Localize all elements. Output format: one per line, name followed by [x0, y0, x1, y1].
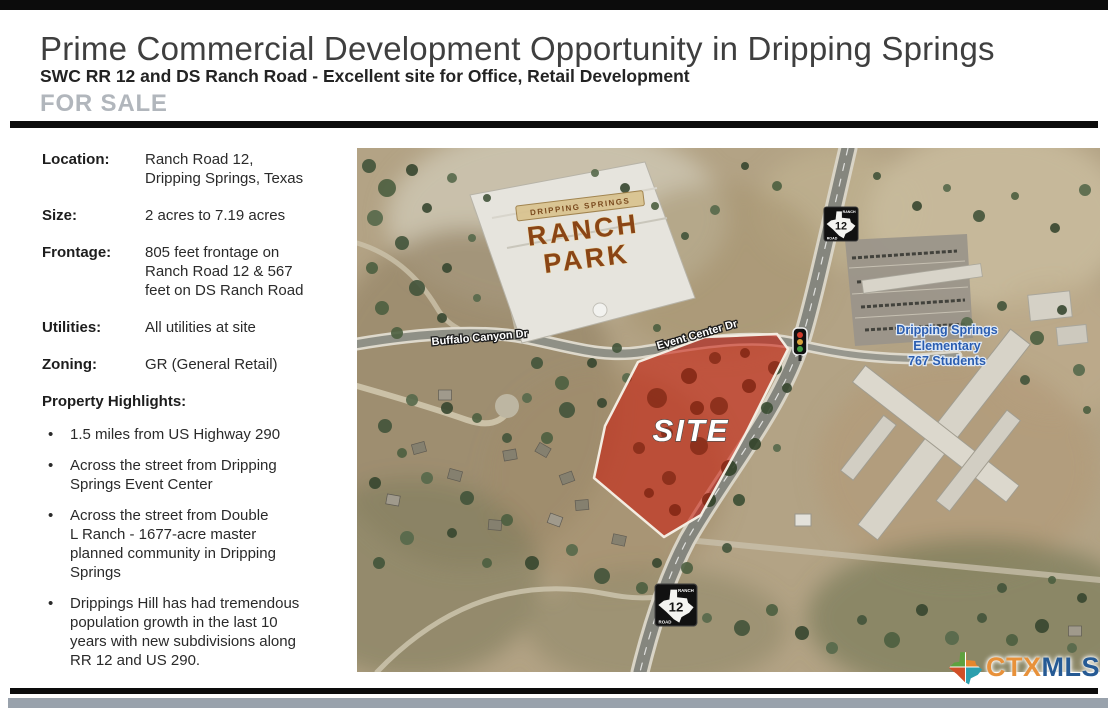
svg-text:767 Students: 767 Students — [908, 354, 986, 368]
bullet-icon: • — [42, 506, 70, 582]
detail-row-zoning: Zoning: GR (General Retail) — [42, 355, 354, 374]
detail-row-location: Location: Ranch Road 12, Dripping Spring… — [42, 150, 354, 188]
for-sale-label: FOR SALE — [40, 90, 168, 118]
detail-label: Location: — [42, 150, 145, 188]
flyer-page: Prime Commercial Development Opportunity… — [0, 0, 1108, 708]
highlight-item: • Across the street from Dripping Spring… — [42, 456, 354, 494]
detail-value: 2 acres to 7.19 acres — [145, 206, 285, 225]
property-highlights-title: Property Highlights: — [42, 392, 354, 411]
site-label: SITE — [653, 413, 730, 448]
texas-logo-icon — [948, 647, 983, 687]
bottom-gray-bar — [8, 698, 1108, 708]
highlight-item: • Drippings Hill has had tremendous popu… — [42, 594, 354, 670]
logo-mls-text: MLS — [1042, 647, 1101, 687]
highlights-list: • 1.5 miles from US Highway 290 • Across… — [42, 425, 354, 670]
highlight-item: • Across the street from Double L Ranch … — [42, 506, 354, 582]
detail-value: GR (General Retail) — [145, 355, 278, 374]
bullet-icon: • — [42, 594, 70, 670]
highway-12-shield-icon — [824, 207, 858, 241]
detail-row-size: Size: 2 acres to 7.19 acres — [42, 206, 354, 225]
detail-value: All utilities at site — [145, 318, 256, 337]
ctxmls-logo: CTXMLS — [948, 646, 1100, 688]
top-black-bar — [0, 0, 1108, 10]
highlight-item: • 1.5 miles from US Highway 290 — [42, 425, 354, 444]
detail-label: Utilities: — [42, 318, 145, 337]
svg-text:Elementary: Elementary — [913, 339, 980, 353]
highway-12-shield-icon — [655, 584, 697, 626]
page-title: Prime Commercial Development Opportunity… — [40, 30, 995, 68]
bullet-icon: • — [42, 456, 70, 494]
aerial-map: RANCH 12 ROAD — [357, 148, 1100, 672]
header-rule — [10, 121, 1098, 128]
aerial-map-svg: RANCH 12 ROAD — [357, 148, 1100, 672]
detail-row-frontage: Frontage: 805 feet frontage on Ranch Roa… — [42, 243, 354, 300]
detail-row-utilities: Utilities: All utilities at site — [42, 318, 354, 337]
logo-ctx-text: CTX — [986, 647, 1042, 687]
detail-label: Frontage: — [42, 243, 145, 300]
detail-label: Size: — [42, 206, 145, 225]
property-details: Location: Ranch Road 12, Dripping Spring… — [42, 150, 354, 682]
svg-text:Dripping Springs: Dripping Springs — [896, 323, 997, 337]
bottom-rule — [10, 688, 1098, 694]
page-subtitle: SWC RR 12 and DS Ranch Road - Excellent … — [40, 66, 690, 87]
detail-value: 805 feet frontage on Ranch Road 12 & 567… — [145, 243, 303, 300]
detail-label: Zoning: — [42, 355, 145, 374]
barn — [795, 514, 811, 526]
bullet-icon: • — [42, 425, 70, 444]
detail-value: Ranch Road 12, Dripping Springs, Texas — [145, 150, 303, 188]
